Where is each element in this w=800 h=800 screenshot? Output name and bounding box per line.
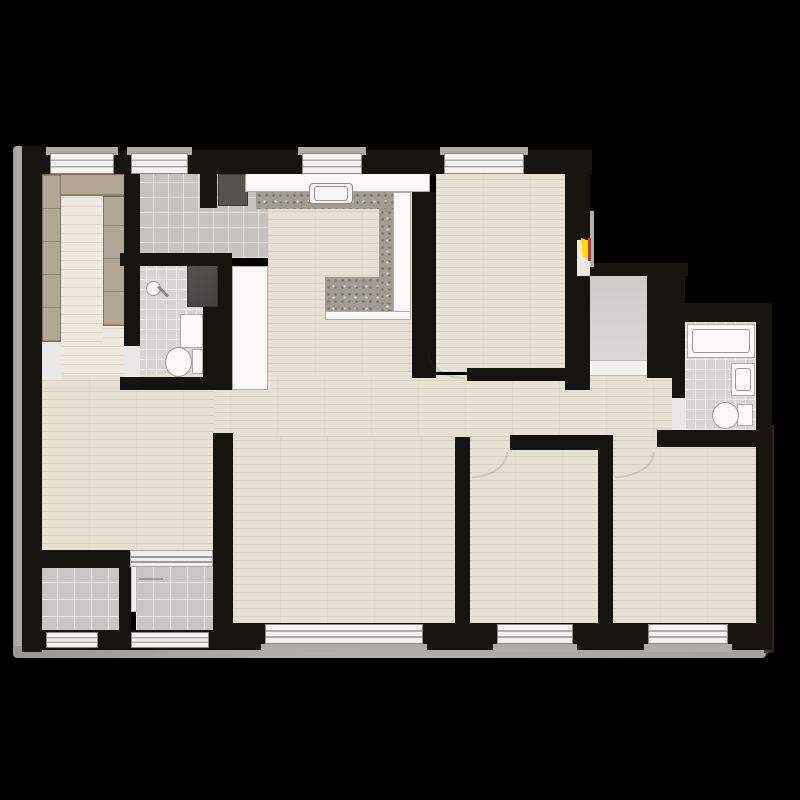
wall-kitchen-right [412,192,436,378]
bathroom-right-sink-basin [735,368,751,391]
bedroom-top-floor [436,170,566,372]
bathroom-right-toilet-tank [737,404,753,426]
wall-living-bedrooms [213,433,233,650]
window-bottom-3 [648,624,728,644]
closet-corner-tile [42,342,62,380]
washing-machine [187,263,218,307]
living-balcony-slider [130,550,213,567]
bathroom-right-door-gap [672,398,685,430]
window-bottom-sill-1 [261,644,427,652]
window-bottom-sill-2 [493,644,577,652]
window-top-2 [131,153,188,174]
bathroom-left-door-gap [124,346,140,377]
entry-door-marker-red [588,238,591,261]
wall-bathroom-right-top [670,303,758,322]
window-top-3 [302,153,362,174]
window-balcony-right [131,632,209,648]
window-top-4 [444,153,524,174]
kitchen-sink-basin [314,186,348,201]
bedroom-left-floor [233,437,455,625]
wardrobe-left [42,174,61,342]
wall-bedroom-right-left [598,435,613,630]
bathroom-left-sink [180,314,203,348]
wall-vestibule-right [647,276,672,378]
wall-exterior-left [22,146,42,652]
wall-bathroom-right-left [672,276,685,398]
vestibule-tile-floor [588,275,648,361]
wall-bedroom-top-bottom [467,368,565,381]
kitchen-counter-white-bottom [325,311,411,320]
balcony-divider-door [131,566,137,612]
wall-bathroom-right-bottom [657,430,757,447]
floor-plan-canvas [0,0,800,800]
window-top-1 [50,153,114,174]
wall-bathroom-duct [218,266,232,390]
wall-foyer-bathroom [120,253,232,266]
wall-living-balcony [22,550,130,568]
kitchen-counter-granite-right [379,209,393,311]
closet-runner-rug [61,196,103,342]
balcony-door-swing-line [139,578,163,580]
kitchen-island-granite [325,277,379,311]
window-bottom-sill-3 [644,644,732,652]
wall-foyer-stub [200,172,217,208]
bathroom-left-toilet-tank [192,349,203,374]
balcony-right-floor [136,566,213,634]
wall-closet-foyer [124,150,140,346]
balcony-left-floor [40,566,120,634]
window-balcony-left [46,632,98,648]
wall-bathroom-bottom [120,377,218,390]
bathroom-right-toilet-bowl [712,402,739,429]
wall-bedrooms-middle-divider [455,437,470,630]
kitchen-counter-white-right [393,192,411,313]
living-room-floor [42,390,214,552]
bathroom-left-toilet-bowl [165,347,192,377]
entry-doormat [218,174,248,206]
window-bottom-1 [265,624,423,644]
entry-threshold [586,360,650,376]
refrigerator [232,266,268,390]
window-bottom-2 [497,624,573,644]
wall-exterior-right [756,303,772,650]
bathtub-inner [692,329,750,353]
wall-balcony-divider [119,566,131,650]
